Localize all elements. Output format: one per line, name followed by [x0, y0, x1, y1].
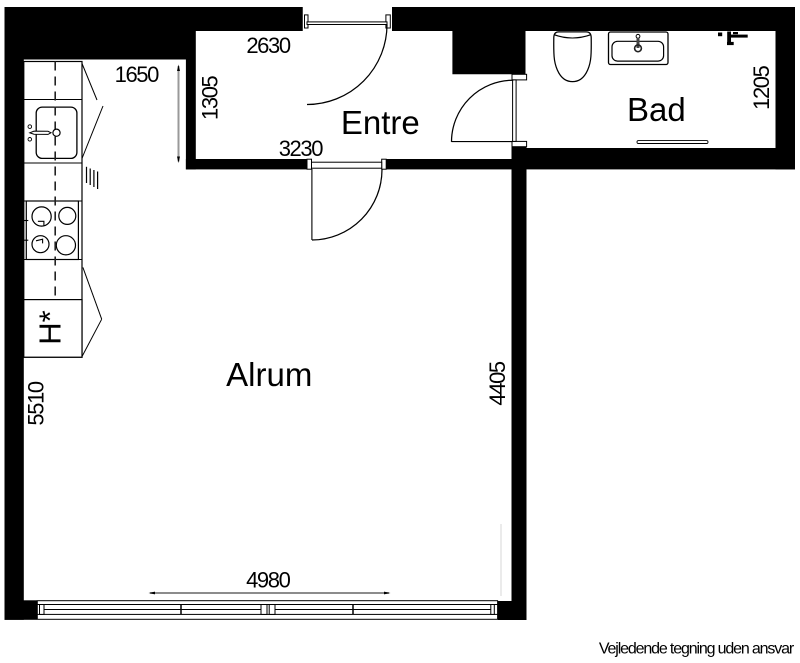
svg-text:Bad: Bad: [627, 91, 686, 128]
svg-text:5510: 5510: [23, 381, 48, 426]
svg-text:3230: 3230: [279, 136, 324, 161]
svg-text:4980: 4980: [246, 568, 291, 593]
svg-text:H*: H*: [33, 310, 68, 344]
svg-text:Entre: Entre: [341, 104, 420, 141]
svg-text:1305: 1305: [197, 75, 222, 120]
svg-text:2630: 2630: [246, 33, 291, 58]
svg-text:4405: 4405: [485, 361, 510, 406]
svg-text:Vejledende tegning uden ansvar: Vejledende tegning uden ansvar: [599, 641, 795, 658]
svg-text:Alrum: Alrum: [226, 356, 312, 393]
svg-text:1205: 1205: [749, 65, 774, 110]
svg-text:1650: 1650: [115, 62, 160, 87]
